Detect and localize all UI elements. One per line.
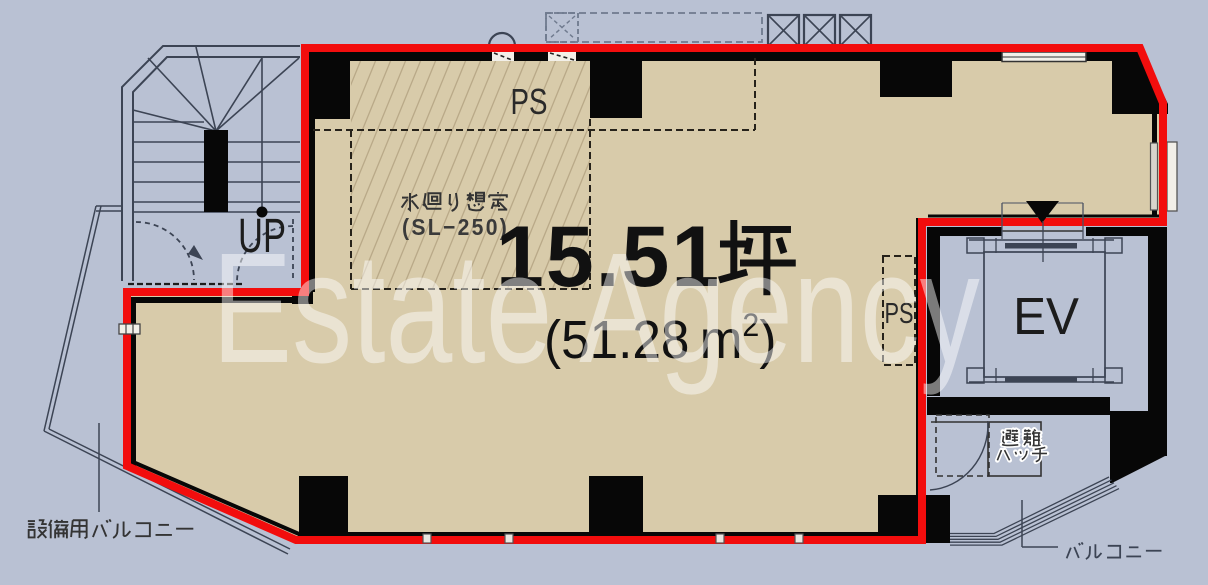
svg-text:PS: PS [511,82,548,122]
svg-text:EV: EV [1013,287,1079,345]
svg-text:Estate Agency: Estate Agency [212,219,980,395]
